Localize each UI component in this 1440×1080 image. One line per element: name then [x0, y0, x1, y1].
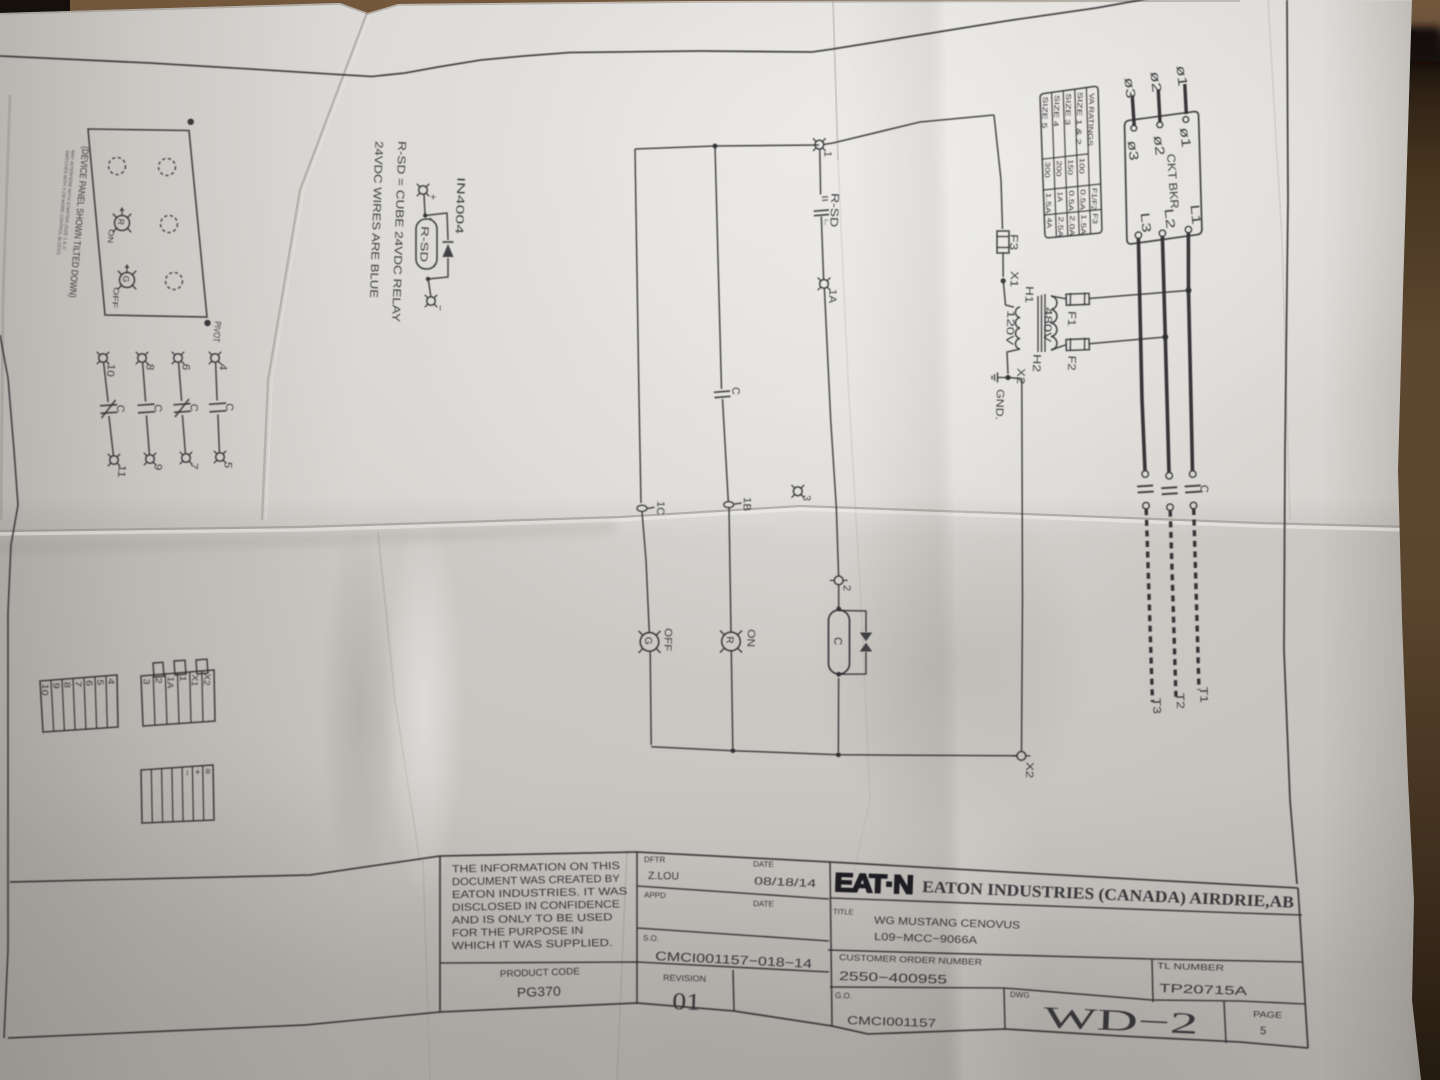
svg-text:1A: 1A	[1056, 191, 1063, 202]
svg-text:APPD: APPD	[644, 891, 666, 901]
svg-text:ø1: ø1	[1177, 127, 1194, 148]
svg-text:T1: T1	[1197, 687, 1210, 703]
svg-text:C: C	[223, 403, 236, 412]
svg-text:2: 2	[840, 585, 852, 591]
svg-text:DWG: DWG	[1010, 990, 1030, 1000]
svg-text:3: 3	[800, 495, 812, 501]
svg-text:100: 100	[1077, 158, 1085, 174]
svg-text:H2: H2	[1030, 354, 1043, 372]
svg-text:ON: ON	[106, 229, 116, 244]
svg-text:−: −	[182, 769, 192, 776]
svg-text:WD−2: WD−2	[1043, 1001, 1199, 1041]
svg-text:8: 8	[62, 682, 72, 689]
svg-text:6: 6	[179, 363, 192, 371]
svg-text:1A: 1A	[826, 289, 838, 303]
svg-text:01: 01	[672, 989, 701, 1016]
svg-text:150: 150	[1066, 159, 1074, 175]
svg-text:1B: 1B	[741, 497, 753, 511]
svg-text:6: 6	[84, 680, 94, 687]
svg-text:11: 11	[115, 464, 128, 478]
svg-text:1C: 1C	[654, 501, 666, 516]
svg-text:5: 5	[1260, 1025, 1267, 1037]
svg-text:2.0A: 2.0A	[1067, 215, 1075, 236]
svg-text:PIVOT: PIVOT	[211, 321, 223, 343]
svg-text:F3: F3	[1007, 234, 1020, 250]
svg-text:ø3: ø3	[1122, 77, 1139, 99]
svg-text:F1: F1	[1065, 311, 1078, 326]
svg-text:C: C	[151, 404, 164, 413]
svg-text:4A: 4A	[1045, 218, 1052, 229]
svg-text:0.5A: 0.5A	[1067, 190, 1075, 212]
svg-text:200: 200	[1054, 160, 1062, 176]
svg-text:5: 5	[95, 679, 105, 686]
svg-text:1: 1	[821, 151, 833, 157]
svg-text:L3: L3	[1138, 212, 1154, 233]
svg-text:4: 4	[216, 363, 229, 371]
svg-text:F3: F3	[1091, 213, 1098, 224]
svg-text:+: +	[426, 216, 433, 220]
svg-text:C: C	[114, 404, 127, 413]
svg-text:SIZE 5: SIZE 5	[1040, 96, 1048, 128]
svg-text:1A: 1A	[165, 676, 176, 689]
svg-text:L2: L2	[1162, 208, 1178, 229]
svg-text:S.O.: S.O.	[643, 934, 659, 943]
svg-text:X2: X2	[1014, 368, 1027, 384]
svg-text:X1: X1	[1007, 271, 1020, 287]
svg-text:2: 2	[153, 677, 163, 684]
svg-text:C: C	[831, 637, 843, 645]
svg-text:ø3: ø3	[1125, 140, 1142, 161]
svg-text:GND.: GND.	[993, 389, 1006, 420]
svg-text:480V: 480V	[1041, 307, 1054, 342]
svg-text:7: 7	[187, 462, 200, 470]
svg-text:T2: T2	[1174, 693, 1187, 709]
svg-text:≡: ≡	[203, 768, 213, 775]
svg-text:−: −	[430, 263, 439, 268]
svg-text:SIZE 4: SIZE 4	[1052, 95, 1060, 127]
svg-text:PAGE: PAGE	[1253, 1009, 1283, 1020]
svg-text:5: 5	[221, 461, 234, 469]
svg-text:3: 3	[141, 678, 151, 685]
svg-text:OFF: OFF	[661, 628, 674, 651]
svg-text:DATE: DATE	[753, 899, 774, 909]
svg-text:R: R	[116, 218, 126, 225]
svg-text:X2: X2	[202, 673, 213, 686]
svg-text:F1/F2: F1/F2	[1090, 188, 1098, 211]
svg-text:+: +	[192, 769, 202, 776]
svg-text:L1: L1	[1188, 204, 1204, 225]
svg-text:ø1: ø1	[1174, 65, 1191, 87]
svg-text:IN4004: IN4004	[453, 177, 467, 234]
svg-text:1: 1	[178, 675, 188, 682]
svg-text:1.5A: 1.5A	[1044, 193, 1052, 215]
svg-text:C: C	[187, 403, 200, 412]
svg-text:ø2: ø2	[1151, 135, 1168, 156]
svg-text:10: 10	[40, 683, 51, 696]
svg-text:H1: H1	[1022, 286, 1035, 303]
svg-text:R-SD: R-SD	[417, 226, 430, 263]
svg-text:C: C	[729, 387, 741, 395]
svg-text:9: 9	[51, 682, 61, 689]
svg-text:G: G	[121, 275, 132, 282]
svg-text:7: 7	[73, 681, 83, 688]
svg-text:R-SD: R-SD	[827, 193, 840, 227]
svg-text:SIZE 3: SIZE 3	[1063, 93, 1071, 125]
svg-text:DATE: DATE	[753, 860, 774, 870]
svg-text:R: R	[724, 636, 735, 644]
svg-text:EAT·N: EAT·N	[834, 867, 914, 900]
svg-text:2.5A: 2.5A	[1056, 216, 1064, 237]
svg-text:4: 4	[106, 678, 116, 685]
svg-text:T3: T3	[1150, 698, 1163, 714]
svg-text:DFTR: DFTR	[644, 855, 666, 864]
svg-text:−: −	[434, 305, 445, 311]
svg-text:ON: ON	[744, 629, 757, 647]
svg-text:F2: F2	[1065, 355, 1078, 370]
svg-text:0.5A: 0.5A	[1078, 189, 1086, 211]
svg-text:REVISION: REVISION	[663, 973, 706, 984]
svg-text:PG370: PG370	[517, 983, 561, 1000]
svg-text:1.5A: 1.5A	[1079, 214, 1087, 235]
svg-text:C: C	[1198, 485, 1210, 493]
svg-text:Z.LOU: Z.LOU	[648, 870, 679, 883]
svg-text:8: 8	[143, 363, 156, 371]
svg-text:9: 9	[151, 463, 164, 471]
svg-text:OFF: OFF	[110, 287, 121, 309]
svg-text:10: 10	[104, 363, 117, 377]
svg-text:X2: X2	[1023, 762, 1036, 779]
svg-text:G.O.: G.O.	[835, 991, 852, 1001]
svg-text:G: G	[642, 637, 653, 645]
svg-text:TITLE: TITLE	[833, 907, 854, 917]
svg-text:ø2: ø2	[1148, 71, 1165, 93]
svg-text:+: +	[427, 194, 438, 200]
svg-text:300: 300	[1043, 162, 1051, 178]
svg-text:X1: X1	[189, 674, 200, 687]
svg-text:120V: 120V	[1003, 310, 1016, 345]
